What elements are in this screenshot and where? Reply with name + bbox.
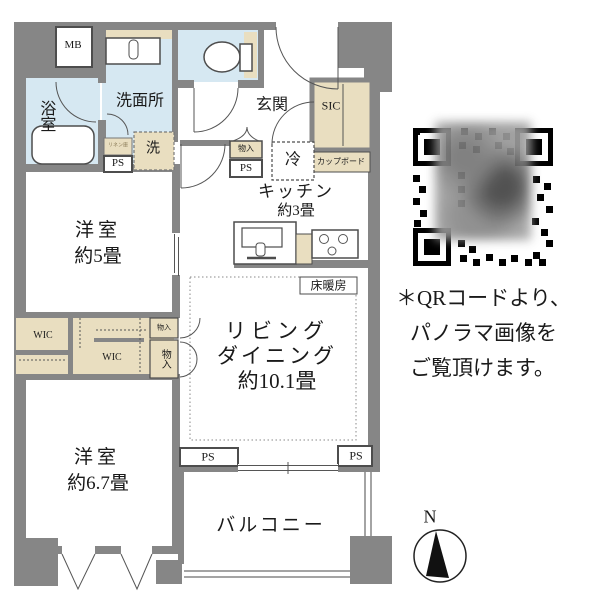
wall-bedroom2-south-b (95, 546, 121, 554)
wic-label-1: WIC (33, 331, 52, 342)
wall-toilet-genkan (258, 30, 264, 88)
washroom-door-arc (181, 144, 225, 188)
living-label-2: ダイニング (217, 345, 337, 367)
qr-blurred-center (435, 122, 531, 240)
laundry-label: 洗 (146, 143, 160, 158)
kitchen-size-label: 約3畳 (277, 204, 315, 220)
bedroom2-name-label: 洋室 (74, 448, 120, 468)
fridge-label: 冷 (285, 153, 301, 170)
qr-code (413, 128, 553, 266)
storage-big-label: 物入 (159, 349, 170, 369)
floorplan-page: MB 浴室 洗面所 リネン庫 洗 PS 玄関 SIC 物入 PS 冷 カップボー… (0, 0, 600, 600)
wall-bedroom1-east-b (172, 274, 180, 318)
bedroom1-name-label: 洋室 (75, 221, 121, 241)
toilet-door-arc (194, 88, 238, 132)
storage-small-door-arc (180, 318, 200, 338)
wic-divider-2 (16, 350, 73, 355)
living-size-label: 約10.1畳 (238, 370, 317, 392)
toilet-bowl-icon (204, 42, 240, 72)
balcony-label: バルコニー (216, 516, 326, 536)
bedroom2-window-2 (121, 554, 152, 589)
sic-label: SIC (322, 100, 341, 113)
qr-data-cells (413, 128, 420, 135)
storage-kitchen-label: 物入 (238, 145, 254, 153)
wall-bedroom2-south-c (152, 546, 180, 554)
bedroom1-size-label: 約5畳 (74, 247, 122, 267)
wic-label-2: WIC (102, 353, 121, 364)
sic-closet (312, 80, 372, 150)
bath-label: 浴室 (37, 100, 54, 132)
wall-left (14, 22, 26, 556)
qr-note-line-3: ご覧頂けます。 (410, 352, 555, 382)
ps-label-kitchen: PS (240, 163, 252, 175)
genkan-label: 玄関 (256, 98, 288, 115)
floor-heating-label: 床暖房 (310, 279, 346, 292)
ps-label-living-left: PS (201, 451, 214, 464)
vanity-faucet-icon (129, 40, 138, 59)
ps-label-living-right: PS (349, 450, 362, 463)
storage-kitchen-door-right (247, 127, 259, 141)
storage-small-label: 物入 (157, 324, 171, 331)
ps-label-washroom: PS (112, 158, 124, 170)
mb-label: MB (64, 40, 81, 52)
wall-top (100, 22, 276, 30)
cupboard-label: カップボード (317, 158, 365, 166)
qr-note-line-1: ＊QRコードより、 (396, 282, 571, 312)
wall-wash-toilet (172, 30, 178, 82)
linen-label: リネン庫 (108, 143, 128, 148)
wall-topright-block (338, 22, 392, 68)
storage-big-door-arc-1 (180, 342, 197, 359)
wall-toilet-south-b (238, 80, 264, 88)
storage-big-door-arc-2 (180, 359, 197, 377)
wic-divider-3 (94, 338, 144, 342)
kitchen-name-label: キッチン (258, 183, 334, 201)
pillar-bottom-left (14, 538, 58, 586)
wall-wic-north (14, 312, 180, 318)
compass-north-label: N (424, 508, 437, 527)
wall-corridor-stub (180, 140, 230, 146)
wall-bedroom1-east-a (172, 172, 180, 236)
kitchen-faucet-icon (256, 243, 265, 256)
qr-note-line-2: パノラマ画像を (410, 317, 557, 347)
wic-divider-1 (68, 316, 73, 374)
wall-balcony-left (178, 472, 184, 564)
storage-kitchen-door-left (233, 127, 247, 141)
living-label-1: リビング (225, 320, 329, 342)
washroom-label: 洗面所 (116, 94, 164, 111)
counter-gap-box (296, 234, 312, 264)
wall-bath-wash-a (98, 78, 106, 83)
pillar-bottom-right (350, 536, 392, 584)
toilet-tank-icon (240, 44, 252, 71)
bedroom2-size-label: 約6.7畳 (67, 474, 129, 494)
bedroom2-window-1 (62, 554, 95, 589)
